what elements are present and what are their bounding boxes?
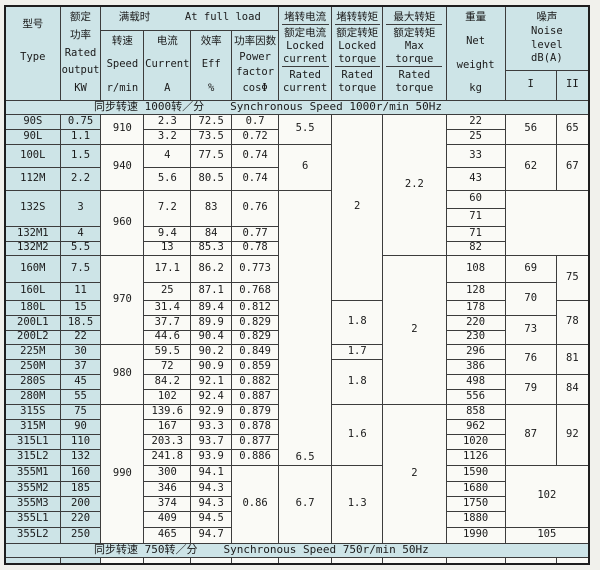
lc-en-num2: current (282, 54, 329, 67)
col-header-rated-output: 额定 功率 Rated output KW (60, 6, 101, 100)
value-cell: 69 (505, 255, 556, 282)
value-cell: 80.5 (191, 167, 232, 190)
lt-en-num1: Locked (338, 41, 376, 52)
value-cell: 167 (144, 419, 191, 434)
current-stack: 电流 Current A (144, 33, 190, 97)
value-cell: 71 (446, 226, 505, 241)
lc-zh-den: 额定电流 (284, 28, 326, 39)
value-cell: 25 (446, 129, 505, 144)
value-cell: 1590 (446, 465, 505, 481)
value-cell: 102 (144, 389, 191, 404)
noise-unit: dB(A) (531, 53, 563, 64)
col-header-noise: 噪声 Noise level dB(A) (505, 6, 589, 70)
value-cell: 960 (101, 190, 144, 255)
rated-unit: KW (74, 83, 87, 94)
eff-unit: % (208, 83, 214, 94)
stub-cell (332, 557, 383, 564)
value-cell: 2 (383, 404, 446, 543)
col-header-current: 电流 Current A (144, 30, 191, 100)
value-cell: 71 (446, 208, 505, 226)
value-cell: 1.8 (332, 359, 383, 404)
rated-kw-cell: 37 (60, 359, 101, 374)
value-cell: 84.2 (144, 374, 191, 389)
type-cell: 90L (5, 129, 60, 144)
mt-en-num1: Max (405, 41, 424, 52)
type-cell: 315M (5, 419, 60, 434)
value-cell: 17.1 (144, 255, 191, 282)
rated-kw-cell: 250 (60, 527, 101, 543)
stub-cell (383, 557, 446, 564)
max-torque-stack: 最大转矩 额定转矩 Max torque Rated torque (383, 9, 445, 97)
value-cell: 128 (446, 282, 505, 300)
pf-unit: cosΦ (242, 83, 267, 94)
col-header-weight: 重量 Net weight kg (446, 6, 505, 100)
col-header-locked-torque-ratio: 堵转转矩 额定转矩 Locked torque Rated torque (332, 6, 383, 100)
value-cell: 59.5 (144, 344, 191, 359)
rated-kw-cell: 200 (60, 496, 101, 511)
value-cell: 556 (446, 389, 505, 404)
table-row: 132S39607.2830.766.560 (5, 190, 589, 208)
col-header-max-torque-ratio: 最大转矩 额定转矩 Max torque Rated torque (383, 6, 446, 100)
rated-label-en1: Rated (65, 48, 97, 59)
rated-kw-cell: 30 (60, 344, 101, 359)
value-cell: 108 (446, 255, 505, 282)
value-cell: 87 (505, 404, 556, 465)
value-cell: 296 (446, 344, 505, 359)
value-cell: 498 (446, 374, 505, 389)
rated-kw-cell: 18.5 (60, 315, 101, 330)
value-cell: 37.7 (144, 315, 191, 330)
type-cell: 355M3 (5, 496, 60, 511)
value-cell: 72.5 (191, 114, 232, 129)
value-cell: 7.2 (144, 190, 191, 226)
eff-zh: 效率 (201, 36, 222, 47)
value-cell: 94.5 (191, 511, 232, 527)
value-cell: 79 (505, 374, 556, 404)
partial-row (5, 557, 589, 564)
col-header-eff: 效率 Eff % (191, 30, 232, 100)
weight-en2: weight (457, 60, 495, 71)
lt-en-den2: torque (338, 83, 376, 94)
lc-en-num1: Locked (286, 41, 324, 52)
mt-en-den1: Rated (399, 70, 431, 81)
type-cell: 355M1 (5, 465, 60, 481)
rated-kw-cell: 90 (60, 419, 101, 434)
current-unit: A (164, 83, 170, 94)
table-body: 同步转速 1000转／分Synchronous Speed 1000r/min … (5, 100, 589, 564)
type-header-stack: 型号 Type (6, 9, 60, 97)
value-cell: 0.849 (232, 344, 279, 359)
value-cell: 4 (144, 144, 191, 167)
type-cell: 200L2 (5, 330, 60, 344)
stub-cell (446, 557, 505, 564)
value-cell: 178 (446, 300, 505, 315)
type-cell: 355L1 (5, 511, 60, 527)
rated-kw-cell: 185 (60, 481, 101, 496)
mt-zh-num: 最大转矩 (386, 12, 442, 25)
value-cell: 33 (446, 144, 505, 167)
rated-kw-cell: 15 (60, 300, 101, 315)
value-cell: 13 (144, 241, 191, 255)
mt-en-num2: torque (386, 54, 442, 67)
band-label-en: Synchronous Speed 750r/min 50Hz (224, 544, 429, 556)
type-cell: 315L1 (5, 434, 60, 449)
value-cell: 0.7 (232, 114, 279, 129)
value-cell: 990 (101, 404, 144, 543)
eff-stack: 效率 Eff % (191, 33, 231, 97)
value-cell: 409 (144, 511, 191, 527)
value-cell: 90.9 (191, 359, 232, 374)
type-cell: 280M (5, 389, 60, 404)
value-cell: 93.3 (191, 419, 232, 434)
mt-en-den2: torque (395, 83, 433, 94)
stub-cell (60, 557, 101, 564)
value-cell: 77.5 (191, 144, 232, 167)
value-cell: 386 (446, 359, 505, 374)
weight-stack: 重量 Net weight kg (447, 9, 505, 97)
stub-cell (505, 557, 556, 564)
lt-zh-num: 堵转转矩 (335, 12, 380, 25)
stub-cell (279, 557, 332, 564)
value-cell: 62 (505, 144, 556, 190)
value-cell: 0.878 (232, 419, 279, 434)
value-cell: 2.3 (144, 114, 191, 129)
value-cell: 78 (556, 300, 589, 344)
value-cell: 6.7 (279, 465, 332, 543)
value-cell: 94.3 (191, 481, 232, 496)
value-cell: 105 (505, 527, 589, 543)
section-band-row: 同步转速 750转／分Synchronous Speed 750r/min 50… (5, 543, 589, 557)
current-zh: 电流 (157, 36, 178, 47)
table-row: 355M116030094.10.866.71.31590102 (5, 465, 589, 481)
value-cell: 81 (556, 344, 589, 374)
value-cell: 220 (446, 315, 505, 330)
value-cell: 1.3 (332, 465, 383, 543)
type-cell: 90S (5, 114, 60, 129)
value-cell: 94.3 (191, 496, 232, 511)
value-cell: 90.2 (191, 344, 232, 359)
value-cell: 940 (101, 144, 144, 190)
lc-en-den2: current (283, 83, 327, 94)
value-cell: 0.829 (232, 330, 279, 344)
lt-en-den1: Rated (341, 70, 373, 81)
rated-kw-cell: 4 (60, 226, 101, 241)
sync-speed-band: 同步转速 1000转／分Synchronous Speed 1000r/min … (5, 100, 589, 114)
pf-en1: Power (239, 52, 271, 63)
value-cell: 5.5 (279, 114, 332, 144)
rated-kw-cell: 0.75 (60, 114, 101, 129)
value-cell: 6 (279, 144, 332, 190)
type-cell: 180L (5, 300, 60, 315)
value-cell: 346 (144, 481, 191, 496)
value-cell: 92.9 (191, 404, 232, 419)
value-cell: 858 (446, 404, 505, 419)
table-header: 型号 Type 额定 功率 Rated output KW 满载时 At ful… (5, 6, 589, 100)
value-cell: 0.773 (232, 255, 279, 282)
speed-en: Speed (107, 59, 139, 70)
type-cell: 160L (5, 282, 60, 300)
band-label-zh: 同步转速 750转／分 (94, 544, 198, 556)
value-cell: 86.2 (191, 255, 232, 282)
col-header-noise-2: II (556, 70, 589, 100)
lt-en-num2: torque (335, 54, 380, 67)
value-cell: 87.1 (191, 282, 232, 300)
rated-kw-cell: 55 (60, 389, 101, 404)
value-cell: 0.882 (232, 374, 279, 389)
speed-stack: 转速 Speed r/min (101, 33, 143, 97)
type-cell: 200L1 (5, 315, 60, 330)
value-cell: 1020 (446, 434, 505, 449)
value-cell: 374 (144, 496, 191, 511)
type-cell: 315S (5, 404, 60, 419)
col-header-type: 型号 Type (5, 6, 60, 100)
pf-zh: 功率因数 (234, 36, 276, 47)
value-cell: 0.74 (232, 167, 279, 190)
rated-kw-cell: 1.5 (60, 144, 101, 167)
value-cell: 0.887 (232, 389, 279, 404)
rated-kw-cell: 132 (60, 449, 101, 465)
value-cell: 73.5 (191, 129, 232, 144)
rated-kw-cell: 7.5 (60, 255, 101, 282)
value-cell: 84 (191, 226, 232, 241)
lc-en-den1: Rated (289, 70, 321, 81)
current-en: Current (145, 59, 189, 70)
value-cell: 1750 (446, 496, 505, 511)
rated-kw-cell: 2.2 (60, 167, 101, 190)
value-cell: 67 (556, 144, 589, 190)
value-cell: 92.4 (191, 389, 232, 404)
value-cell: 94.1 (191, 465, 232, 481)
value-cell: 0.859 (232, 359, 279, 374)
lc-zh-num: 堵转电流 (282, 12, 329, 25)
value-cell: 22 (446, 114, 505, 129)
value-cell: 31.4 (144, 300, 191, 315)
value-cell: 300 (144, 465, 191, 481)
col-header-noise-1: I (505, 70, 556, 100)
rated-label-zh2: 功率 (70, 30, 91, 41)
value-cell: 465 (144, 527, 191, 543)
value-cell: 2 (383, 255, 446, 404)
value-cell: 70 (505, 282, 556, 315)
table-row: 90S0.759102.372.50.75.522.2225665 (5, 114, 589, 129)
value-cell: 1.6 (332, 404, 383, 465)
stub-cell (232, 557, 279, 564)
value-cell: 60 (446, 190, 505, 208)
value-cell: 85.3 (191, 241, 232, 255)
rated-kw-cell: 110 (60, 434, 101, 449)
value-cell: 0.768 (232, 282, 279, 300)
rated-kw-cell: 1.1 (60, 129, 101, 144)
mt-zh-den: 额定转矩 (393, 28, 435, 39)
value-cell: 1.8 (332, 300, 383, 344)
type-cell: 132M2 (5, 241, 60, 255)
value-cell: 92.1 (191, 374, 232, 389)
value-cell: 970 (101, 255, 144, 344)
col-header-locked-current-ratio: 堵转电流 额定电流 Locked current Rated current (279, 6, 332, 100)
full-load-stack: 满载时 At full load (101, 12, 278, 24)
value-cell: 1126 (446, 449, 505, 465)
header-row-1: 型号 Type 额定 功率 Rated output KW 满载时 At ful… (5, 6, 589, 30)
value-cell: 56 (505, 114, 556, 144)
noise-en2: level (531, 40, 563, 51)
value-cell: 230 (446, 330, 505, 344)
rated-kw-cell: 45 (60, 374, 101, 389)
rated-kw-cell: 22 (60, 330, 101, 344)
rated-kw-cell: 220 (60, 511, 101, 527)
pf-en2: factor (236, 67, 274, 78)
type-cell: 315L2 (5, 449, 60, 465)
value-cell: 102 (505, 465, 589, 527)
value-cell: 93.9 (191, 449, 232, 465)
col-header-speed: 转速 Speed r/min (101, 30, 144, 100)
noise-en1: Noise (531, 26, 563, 37)
noise-zh: 噪声 (536, 12, 557, 23)
sync-speed-band: 同步转速 750转／分Synchronous Speed 750r/min 50… (5, 543, 589, 557)
weight-zh: 重量 (465, 12, 486, 23)
rated-kw-cell: 3 (60, 190, 101, 226)
speed-unit: r/min (107, 83, 139, 94)
value-cell: 2.2 (383, 114, 446, 255)
value-cell: 5.6 (144, 167, 191, 190)
value-cell: 72 (144, 359, 191, 374)
value-cell: 0.86 (232, 465, 279, 543)
value-cell: 3.2 (144, 129, 191, 144)
weight-en1: Net (466, 36, 485, 47)
value-cell: 93.7 (191, 434, 232, 449)
rated-header-stack: 额定 功率 Rated output KW (61, 9, 101, 97)
band-label-zh: 同步转速 1000转／分 (94, 101, 204, 113)
rated-kw-cell: 5.5 (60, 241, 101, 255)
value-cell: 0.72 (232, 129, 279, 144)
value-cell: 0.812 (232, 300, 279, 315)
col-header-full-load: 满载时 At full load (101, 6, 279, 30)
type-cell: 112M (5, 167, 60, 190)
scanned-spec-sheet: 型号 Type 额定 功率 Rated output KW 满载时 At ful… (0, 0, 600, 565)
stub-cell (5, 557, 60, 564)
value-cell: 1880 (446, 511, 505, 527)
value-cell: 84 (556, 374, 589, 404)
full-load-zh: 满载时 (119, 12, 151, 24)
band-label-en: Synchronous Speed 1000r/min 50Hz (230, 101, 442, 113)
type-label-zh: 型号 (22, 19, 43, 30)
type-cell: 225M (5, 344, 60, 359)
value-cell: 203.3 (144, 434, 191, 449)
rated-kw-cell: 75 (60, 404, 101, 419)
value-cell: 89.9 (191, 315, 232, 330)
value-cell: 980 (101, 344, 144, 404)
table-row: 100L1.5940477.50.746336267 (5, 144, 589, 167)
value-cell: 25 (144, 282, 191, 300)
weight-unit: kg (469, 83, 482, 94)
type-label-en: Type (20, 52, 45, 63)
stub-cell (144, 557, 191, 564)
value-cell: 0.886 (232, 449, 279, 465)
value-cell: 6.5 (279, 190, 332, 465)
value-cell: 0.879 (232, 404, 279, 419)
value-cell: 90.4 (191, 330, 232, 344)
type-cell: 355M2 (5, 481, 60, 496)
motor-spec-table: 型号 Type 额定 功率 Rated output KW 满载时 At ful… (4, 5, 590, 565)
full-load-en: At full load (185, 12, 261, 24)
value-cell: 44.6 (144, 330, 191, 344)
pf-stack: 功率因数 Power factor cosΦ (232, 33, 278, 97)
value-cell: 76 (505, 344, 556, 374)
speed-zh: 转速 (112, 36, 133, 47)
type-cell: 355L2 (5, 527, 60, 543)
rated-kw-cell: 11 (60, 282, 101, 300)
value-cell: 1.7 (332, 344, 383, 359)
value-cell: 0.78 (232, 241, 279, 255)
value-cell: 1990 (446, 527, 505, 543)
stub-cell (191, 557, 232, 564)
value-cell: 139.6 (144, 404, 191, 419)
value-cell: 962 (446, 419, 505, 434)
value-cell: 241.8 (144, 449, 191, 465)
value-cell: 9.4 (144, 226, 191, 241)
value-cell: 92 (556, 404, 589, 465)
type-cell: 132M1 (5, 226, 60, 241)
lt-zh-den: 额定转矩 (336, 28, 378, 39)
value-cell: 73 (505, 315, 556, 344)
value-cell: 65 (556, 114, 589, 144)
type-cell: 132S (5, 190, 60, 226)
value-cell: 89.4 (191, 300, 232, 315)
rated-label-en2: output (62, 65, 100, 76)
type-cell: 280S (5, 374, 60, 389)
value-cell: 83 (191, 190, 232, 226)
type-cell: 250M (5, 359, 60, 374)
rated-kw-cell: 160 (60, 465, 101, 481)
col-header-power-factor: 功率因数 Power factor cosΦ (232, 30, 279, 100)
noise-stack: 噪声 Noise level dB(A) (506, 9, 588, 67)
value-cell: 0.74 (232, 144, 279, 167)
value-cell: 910 (101, 114, 144, 144)
value-cell: 75 (556, 255, 589, 300)
stub-cell (101, 557, 144, 564)
section-band-row: 同步转速 1000转／分Synchronous Speed 1000r/min … (5, 100, 589, 114)
locked-current-stack: 堵转电流 额定电流 Locked current Rated current (279, 9, 331, 97)
value-cell: 0.829 (232, 315, 279, 330)
locked-torque-stack: 堵转转矩 额定转矩 Locked torque Rated torque (332, 9, 382, 97)
value-cell: 1680 (446, 481, 505, 496)
value-cell: 2 (332, 114, 383, 300)
eff-en: Eff (202, 59, 221, 70)
value-cell: 82 (446, 241, 505, 255)
value-cell: 0.76 (232, 190, 279, 226)
value-cell: 43 (446, 167, 505, 190)
value-cell: 0.77 (232, 226, 279, 241)
stub-cell (556, 557, 589, 564)
rated-label-zh1: 额定 (70, 12, 91, 23)
value-cell: 0.877 (232, 434, 279, 449)
value-cell: 94.7 (191, 527, 232, 543)
type-cell: 160M (5, 255, 60, 282)
type-cell: 100L (5, 144, 60, 167)
